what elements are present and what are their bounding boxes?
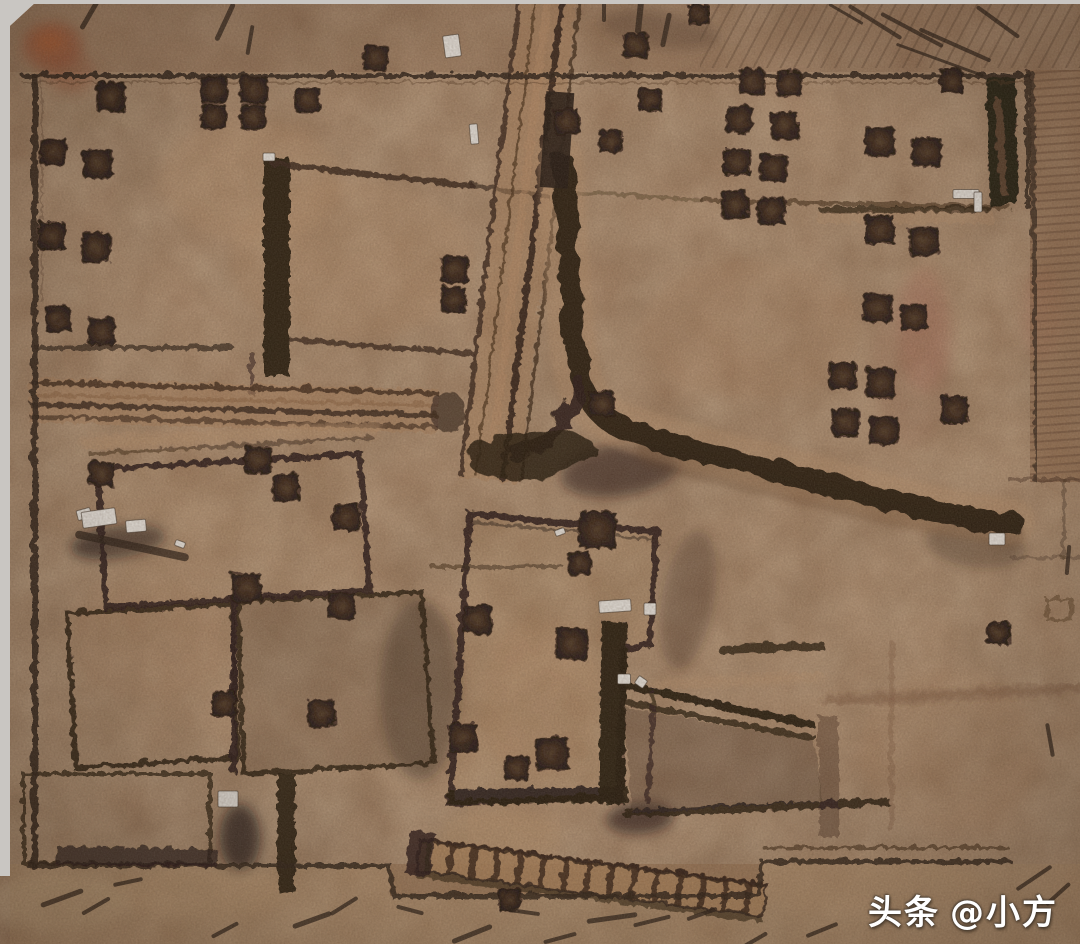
excavation-site-photo: 头条@小方	[0, 0, 1080, 944]
watermark-brand: 头条	[868, 893, 940, 933]
watermark-handle: @小方	[950, 893, 1058, 933]
watermark: 头条@小方	[868, 885, 1058, 934]
vignette	[0, 0, 1080, 944]
site-orthophoto	[0, 0, 1080, 944]
